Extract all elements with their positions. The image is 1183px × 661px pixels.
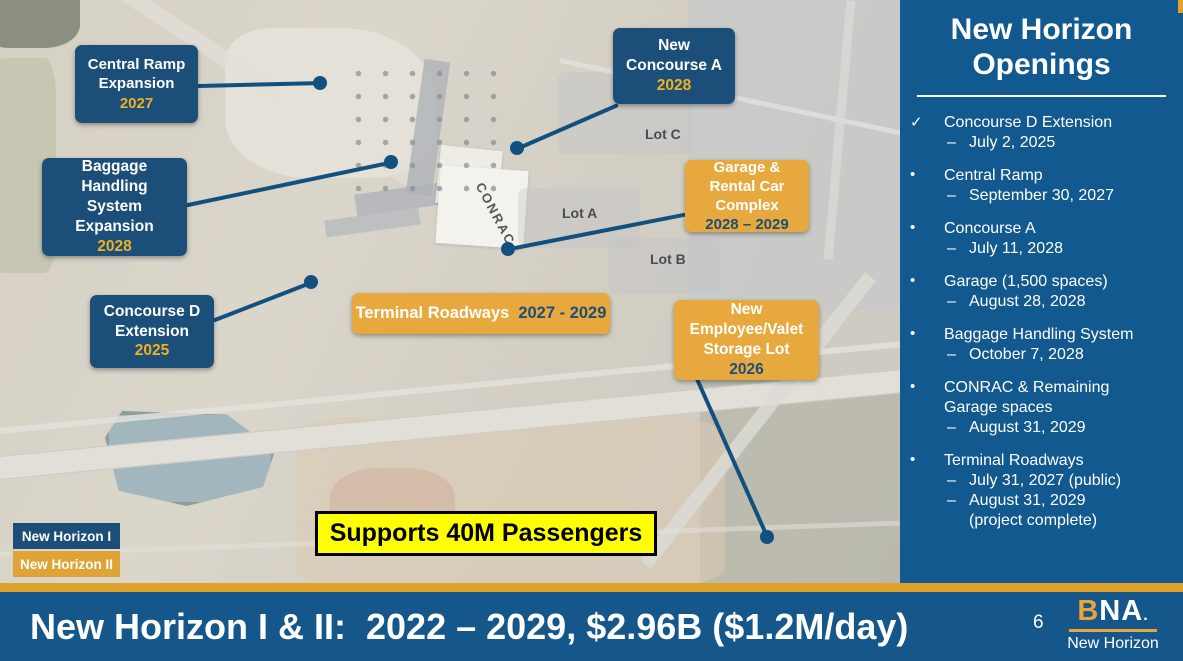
item-date: August 28, 2028: [969, 292, 1086, 312]
gold-divider-strip: [0, 583, 1183, 592]
list-item: • Baggage Handling System –October 7, 20…: [910, 325, 1177, 365]
callout-concourse-d-extension: Concourse D Extension 2025: [90, 295, 214, 368]
footer-bar: New Horizon I & II: 2022 – 2029, $2.96B …: [0, 592, 1183, 661]
callout-central-ramp-expansion: Central Ramp Expansion 2027: [75, 45, 198, 123]
callout-year: 2027 - 2029: [518, 303, 606, 324]
leader-dot-central-ramp: [313, 76, 327, 90]
bna-logo-text: BNA.: [1059, 596, 1167, 628]
leader-dot-concourse-a: [510, 141, 524, 155]
dash-marker: –: [947, 239, 969, 259]
item-date: July 11, 2028: [969, 239, 1063, 259]
item-title: Garage (1,500 spaces): [944, 272, 1144, 292]
bna-new-horizon-logo: BNA. New Horizon: [1059, 596, 1167, 653]
item-date: July 31, 2027 (public): [969, 471, 1121, 491]
gold-corner-accent: [1178, 0, 1183, 13]
bullet-icon: •: [910, 451, 944, 531]
callout-title: Terminal Roadways: [356, 303, 510, 324]
check-icon: ✓: [910, 113, 944, 153]
dash-marker: –: [947, 292, 969, 312]
callout-year: 2028 – 2029: [705, 215, 788, 234]
item-title: Concourse D Extension: [944, 113, 1144, 133]
callout-year: 2028: [657, 76, 691, 96]
dash-marker: –: [947, 345, 969, 365]
item-title: Terminal Roadways: [944, 451, 1144, 471]
passengers-banner: Supports 40M Passengers: [315, 511, 657, 556]
callout-year: 2026: [729, 360, 763, 380]
footer-headline: New Horizon I & II: 2022 – 2029, $2.96B …: [30, 606, 908, 648]
item-date: September 30, 2027: [969, 186, 1114, 206]
airport-satellite-map: CONRAC Lot C Lot A Lot B Central Ramp Ex…: [0, 0, 900, 583]
logo-letters-na: NA: [1099, 595, 1143, 627]
item-title: CONRAC & Remaining Garage spaces: [944, 378, 1144, 418]
list-item: • Central Ramp –September 30, 2027: [910, 166, 1177, 206]
lot-b-label: Lot B: [650, 251, 686, 267]
callout-title: New Concourse A: [624, 36, 724, 76]
legend-new-horizon-2: New Horizon II: [13, 551, 120, 577]
bullet-icon: •: [910, 378, 944, 438]
logo-dot: .: [1143, 607, 1148, 624]
openings-sidebar: New Horizon Openings ✓ Concourse D Exten…: [900, 0, 1183, 583]
sidebar-title-line1: New Horizon: [900, 12, 1183, 47]
sidebar-title: New Horizon Openings: [900, 12, 1183, 83]
callout-title: Garage & Rental Car Complex: [690, 158, 804, 216]
page-number: 6: [1033, 612, 1044, 634]
lot-c-label: Lot C: [645, 126, 681, 142]
leader-dot-valet: [760, 530, 774, 544]
dash-marker: –: [947, 133, 969, 153]
item-title: Central Ramp: [944, 166, 1144, 186]
list-item: • CONRAC & Remaining Garage spaces –Augu…: [910, 378, 1177, 438]
list-item: ✓ Concourse D Extension –July 2, 2025: [910, 113, 1177, 153]
item-date: October 7, 2028: [969, 345, 1084, 365]
leader-dot-garage: [501, 242, 515, 256]
bullet-icon: •: [910, 166, 944, 206]
legend-new-horizon-1: New Horizon I: [13, 523, 120, 549]
sidebar-divider: [917, 95, 1166, 97]
list-item: • Concourse A –July 11, 2028: [910, 219, 1177, 259]
sidebar-title-line2: Openings: [900, 47, 1183, 82]
bullet-icon: •: [910, 325, 944, 365]
callout-baggage-handling: Baggage Handling System Expansion 2028: [42, 158, 187, 256]
lot-a-label: Lot A: [562, 205, 597, 221]
list-item: • Terminal Roadways –July 31, 2027 (publ…: [910, 451, 1177, 531]
slide: CONRAC Lot C Lot A Lot B Central Ramp Ex…: [0, 0, 1183, 661]
callout-title: New Employee/Valet Storage Lot: [682, 300, 811, 359]
item-date: August 31, 2029 (project complete): [969, 491, 1137, 531]
logo-underline: [1069, 629, 1157, 632]
dash-marker: –: [947, 186, 969, 206]
dash-marker: –: [947, 471, 969, 491]
callout-year: 2027: [120, 94, 153, 113]
bullet-icon: •: [910, 272, 944, 312]
callout-garage-rental-car: Garage & Rental Car Complex 2028 – 2029: [685, 160, 809, 232]
openings-list: ✓ Concourse D Extension –July 2, 2025 • …: [900, 107, 1183, 531]
callout-employee-valet-lot: New Employee/Valet Storage Lot 2026: [674, 300, 819, 380]
dash-marker: –: [947, 418, 969, 438]
leader-dot-baggage: [384, 155, 398, 169]
logo-tagline: New Horizon: [1059, 635, 1167, 653]
callout-terminal-roadways: Terminal Roadways 2027 - 2029: [352, 293, 610, 334]
item-date: August 31, 2029: [969, 418, 1086, 438]
bullet-icon: •: [910, 219, 944, 259]
item-date: July 2, 2025: [969, 133, 1055, 153]
logo-letter-b: B: [1077, 595, 1099, 627]
callout-title: Central Ramp Expansion: [86, 55, 187, 93]
callout-title: Baggage Handling System Expansion: [54, 157, 175, 236]
item-title: Baggage Handling System: [944, 325, 1144, 345]
callout-year: 2028: [97, 237, 131, 257]
dash-marker: –: [947, 491, 969, 531]
item-title: Concourse A: [944, 219, 1144, 239]
leader-dot-concourse-d: [304, 275, 318, 289]
list-item: • Garage (1,500 spaces) –August 28, 2028: [910, 272, 1177, 312]
callout-year: 2025: [135, 341, 169, 361]
callout-new-concourse-a: New Concourse A 2028: [613, 28, 735, 104]
callout-title: Concourse D Extension: [102, 302, 202, 342]
